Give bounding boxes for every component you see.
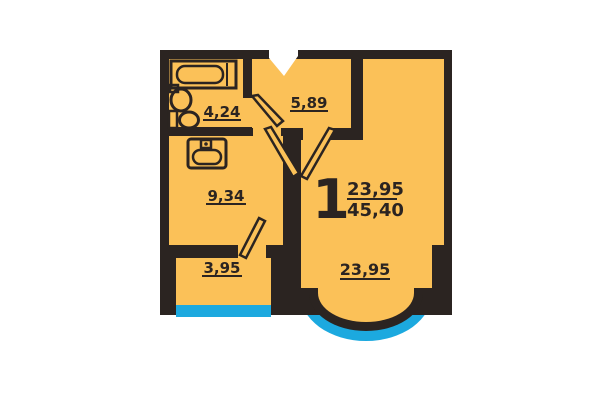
floor-plan-canvas: 4,24 5,89 9,34 3,95 23,95 1 23,95 45,40 <box>0 0 600 400</box>
living-area-value: 23,95 <box>347 179 404 200</box>
loggia-glazing <box>176 305 271 317</box>
living-area-label: 23,95 <box>340 260 391 279</box>
bathroom-area-label: 4,24 <box>203 103 240 121</box>
kitchen-area-label: 9,34 <box>207 187 244 205</box>
loggia-area-label: 3,95 <box>203 259 240 277</box>
apartment-number: 1 <box>312 168 350 231</box>
kitchen-faucet-dot <box>204 142 208 146</box>
bathroom-door-opening <box>243 98 252 127</box>
hallway-area-label: 5,89 <box>290 94 327 112</box>
floor-plan: 4,24 5,89 9,34 3,95 23,95 1 23,95 45,40 <box>0 0 600 400</box>
total-area-value: 45,40 <box>347 200 404 221</box>
